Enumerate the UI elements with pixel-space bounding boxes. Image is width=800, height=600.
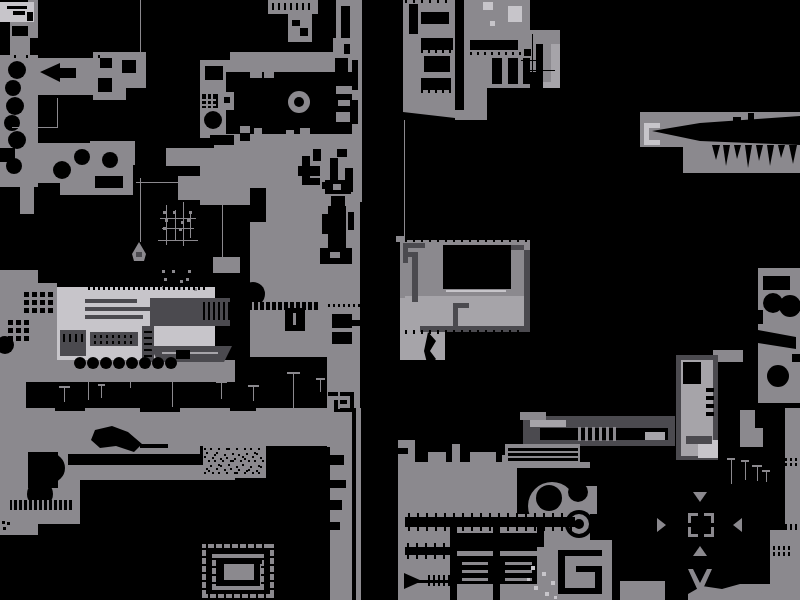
map-canvas[interactable]: [0, 0, 800, 600]
game-map: [0, 0, 800, 600]
